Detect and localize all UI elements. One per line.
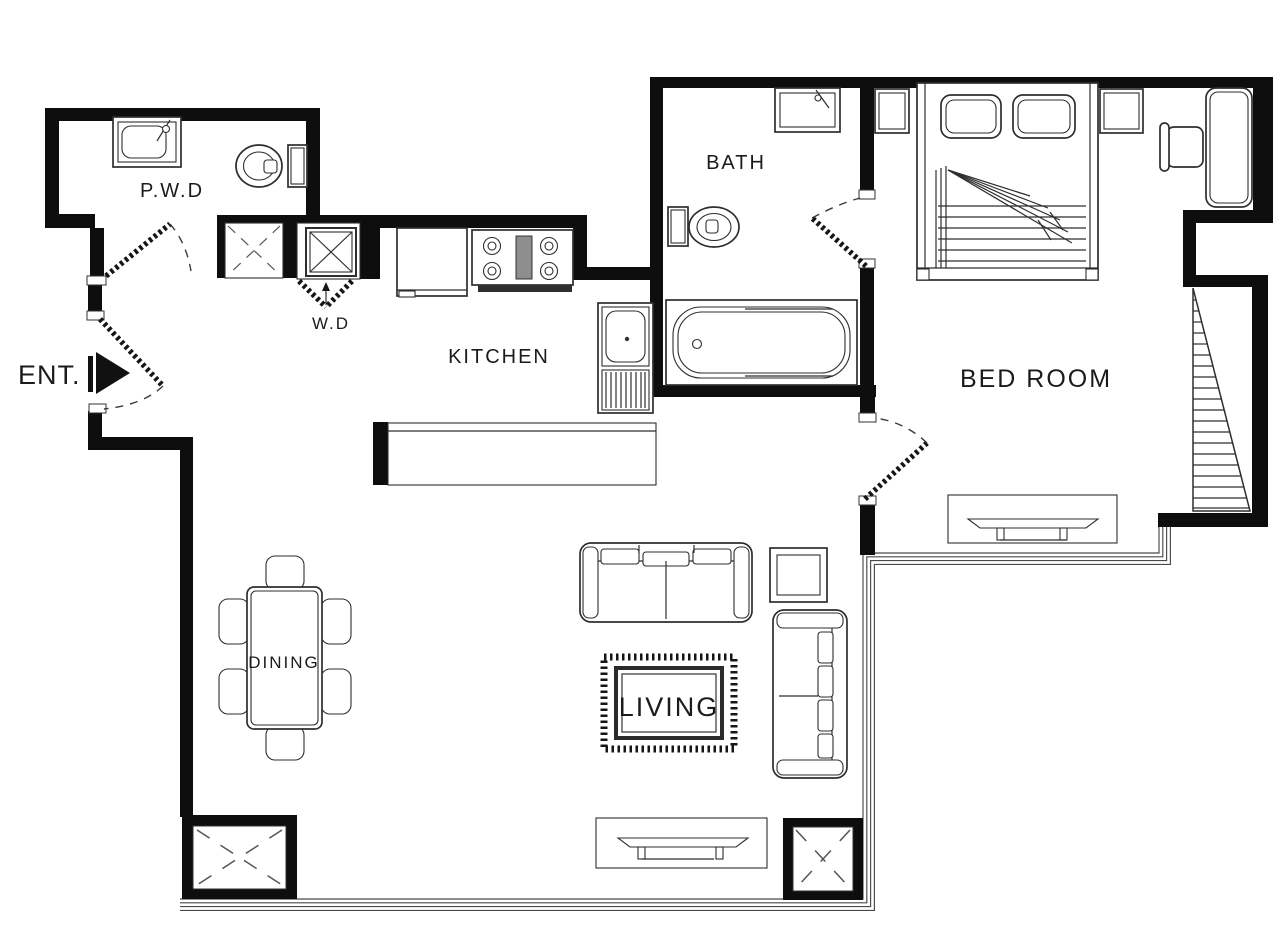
bath-door-swing [812, 198, 866, 266]
label-kitchen: KITCHEN [448, 346, 550, 368]
kitchen-sink-icon [598, 303, 653, 413]
structural-column-dining [182, 815, 297, 899]
pwd-sink-icon [113, 117, 181, 167]
wall-notch-upper [1183, 210, 1273, 223]
living-tv-console [596, 818, 767, 868]
bathtub-icon [666, 300, 857, 385]
pwd-toilet-icon [236, 145, 307, 187]
entry-arrow-icon [88, 352, 130, 394]
label-entrance: ENT. [18, 360, 81, 390]
double-bed-icon [917, 83, 1098, 280]
jamb-bedroom-top [859, 413, 876, 422]
wall-entry-a [88, 284, 102, 313]
jamb-pwd-hinge [87, 276, 106, 285]
refrigerator-icon [397, 228, 467, 297]
dining-chair [219, 599, 249, 644]
wall-wd-pier-mid [283, 223, 297, 278]
dryer-box [297, 223, 360, 279]
wall-bedroom-right-lower [1252, 275, 1268, 527]
sofa-right-icon [773, 610, 847, 778]
bath-sink-icon [775, 88, 840, 132]
wall-peninsula-stub [373, 422, 388, 485]
wall-pwd-door-stub [90, 228, 104, 277]
washer-box [225, 223, 283, 278]
label-living: LIVING [619, 692, 720, 722]
dining-chair [266, 556, 304, 590]
nightstand-right [1100, 89, 1143, 133]
wall-notch-lower [1183, 275, 1255, 287]
armchair-icon [1160, 123, 1203, 171]
dining-chair [321, 669, 351, 714]
bedroom-door-swing [865, 418, 927, 499]
wall-bedroom-right-upper [1253, 77, 1273, 223]
wall-kitchen-top [373, 215, 587, 228]
dining-chair [321, 599, 351, 644]
dining-chair [219, 669, 249, 714]
dining-chair [266, 726, 304, 760]
wall-bath-right-lower [860, 268, 874, 387]
wall-bedroom-bottom-right [1158, 513, 1268, 527]
wall-bath-bottom [650, 385, 876, 397]
wall-pwd-top [45, 108, 320, 121]
kitchen-counter [388, 423, 656, 485]
wall-bath-right-upper [860, 88, 874, 191]
bedroom-tv-console [948, 495, 1117, 543]
label-pwd: P.W.D [140, 180, 204, 202]
floor-plan-drawing: P.W.D W.D KITCHEN BATH BED ROOM DINING L… [0, 0, 1280, 944]
wall-pwd-bottom-left [45, 214, 95, 228]
label-dining: DINING [248, 653, 320, 672]
side-table-icon [770, 548, 827, 602]
label-bath: BATH [706, 152, 766, 174]
wall-bedroom-door-stub-lower [860, 505, 875, 555]
wall-wd-pier-right [360, 223, 380, 279]
label-wd: W.D [312, 314, 350, 333]
wall-entry-corner [88, 437, 193, 450]
wall-kitchen-step-h [573, 267, 663, 280]
nightstand-left [875, 89, 909, 133]
structural-column-living [783, 818, 863, 900]
wall-wd-pier-left [217, 223, 225, 278]
jamb-entry-bottom [89, 404, 106, 413]
wd-bifold-door [299, 281, 352, 307]
sofa-top-icon [580, 543, 752, 622]
wall-dining-left [180, 437, 193, 817]
jamb-bath-top [859, 190, 875, 199]
wall-pwd-right [306, 108, 320, 219]
wall-bedroom-door-stub-upper [860, 385, 875, 414]
wall-pwd-left [45, 108, 59, 228]
bath-toilet-icon [668, 207, 739, 247]
label-bedroom: BED ROOM [960, 365, 1112, 393]
floor-plan: P.W.D W.D KITCHEN BATH BED ROOM DINING L… [0, 0, 1280, 944]
pwd-door-swing [106, 224, 191, 276]
louver-hatch [1193, 288, 1250, 511]
desk-icon [1206, 88, 1252, 207]
stove-icon [472, 230, 573, 292]
